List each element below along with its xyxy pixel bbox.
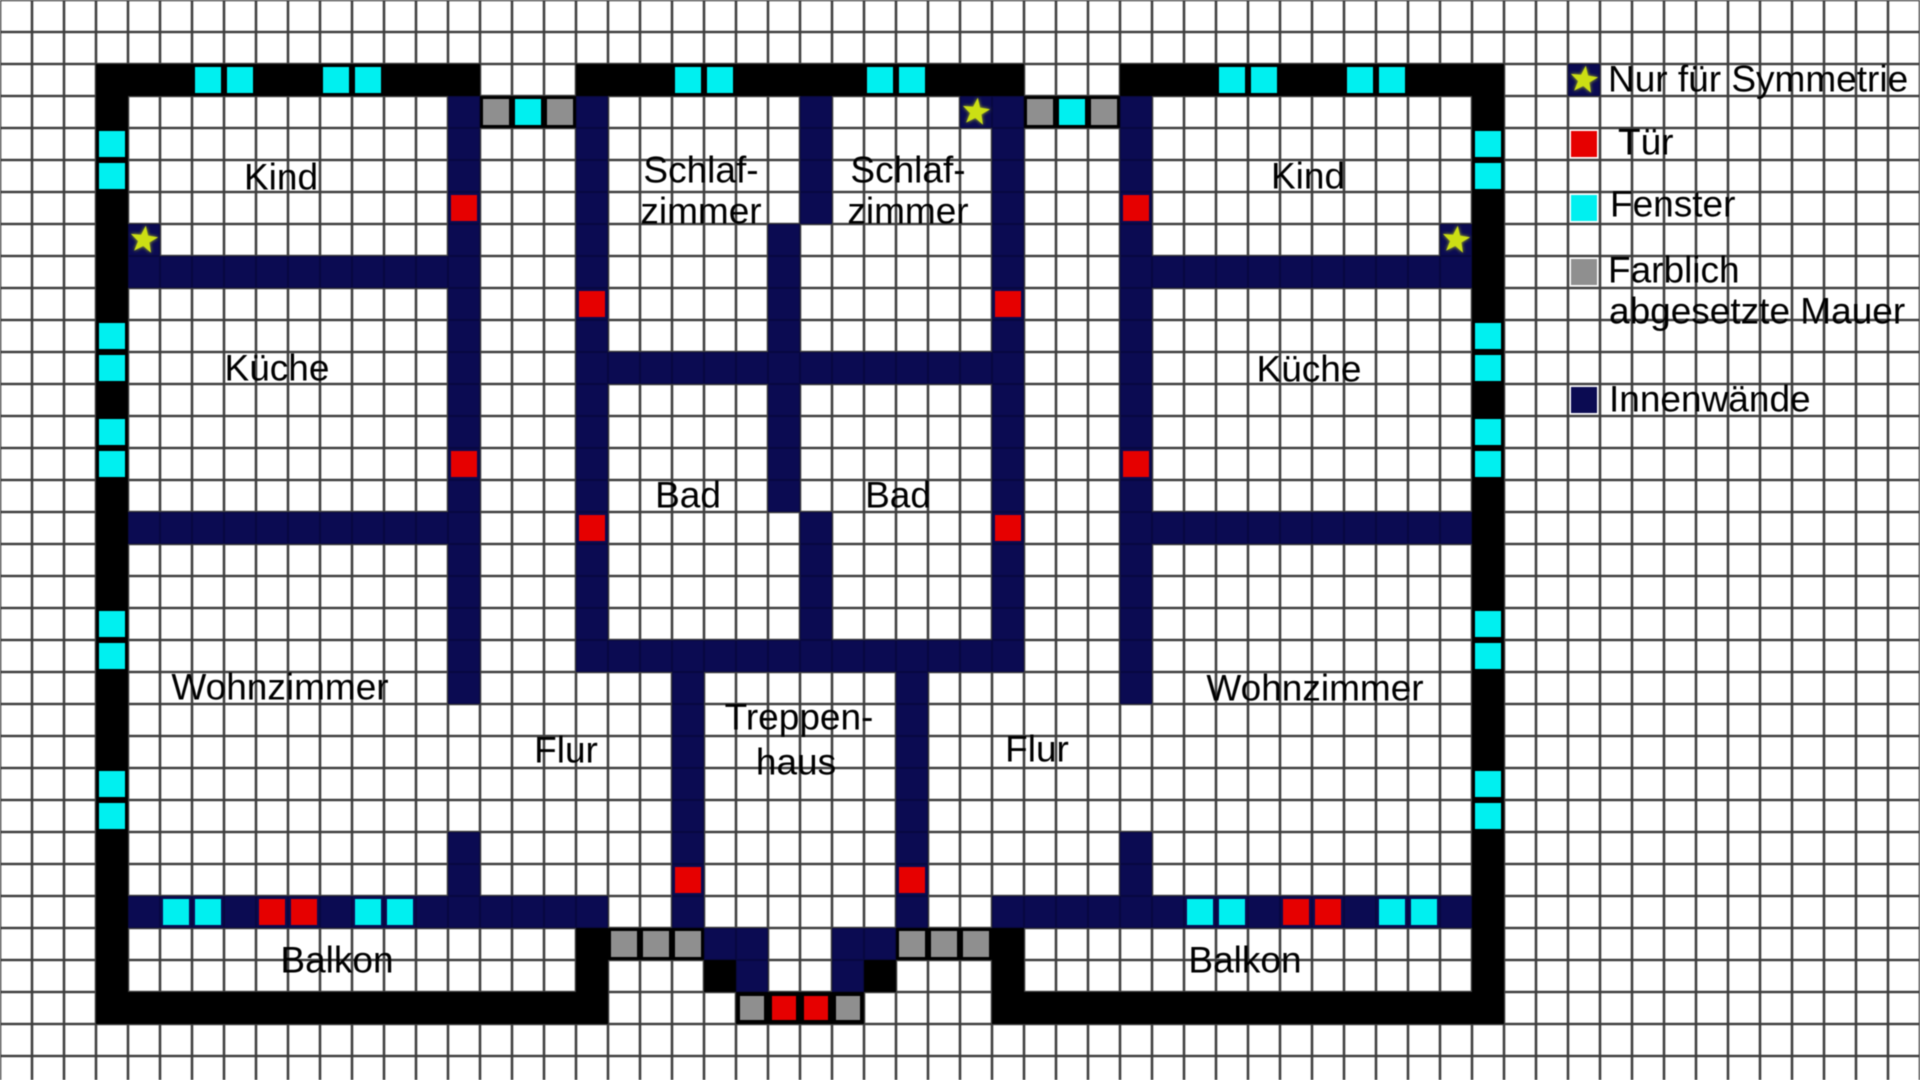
svg-text:Küche: Küche	[225, 348, 330, 389]
svg-text:Kind: Kind	[244, 157, 318, 198]
svg-text:Nur für Symmetrie: Nur für Symmetrie	[1608, 59, 1908, 100]
svg-text:Balkon: Balkon	[280, 940, 393, 981]
svg-text:Schlaf-: Schlaf-	[850, 150, 965, 191]
svg-text:zimmer: zimmer	[640, 191, 761, 232]
svg-text:Flur: Flur	[1005, 729, 1069, 770]
svg-text:Flur: Flur	[534, 730, 598, 771]
svg-text:Farblich: Farblich	[1608, 250, 1740, 291]
svg-text:Kind: Kind	[1271, 156, 1345, 197]
svg-text:Innenwände: Innenwände	[1609, 379, 1811, 420]
svg-text:Schlaf-: Schlaf-	[643, 150, 758, 191]
svg-text:Balkon: Balkon	[1188, 940, 1301, 981]
svg-text:zimmer: zimmer	[847, 191, 968, 232]
svg-text:Fenster: Fenster	[1610, 184, 1735, 225]
svg-text:Küche: Küche	[1257, 349, 1362, 390]
svg-text:Wohnzimmer: Wohnzimmer	[1206, 668, 1423, 709]
svg-text:haus: haus	[756, 742, 836, 783]
svg-text:Bad: Bad	[865, 475, 931, 516]
svg-text:Wohnzimmer: Wohnzimmer	[171, 667, 388, 708]
svg-text:Bad: Bad	[655, 475, 721, 516]
svg-text:abgesetzte Mauer: abgesetzte Mauer	[1609, 291, 1905, 332]
svg-text:Treppen-: Treppen-	[725, 697, 874, 738]
svg-text:Tür: Tür	[1618, 122, 1674, 163]
